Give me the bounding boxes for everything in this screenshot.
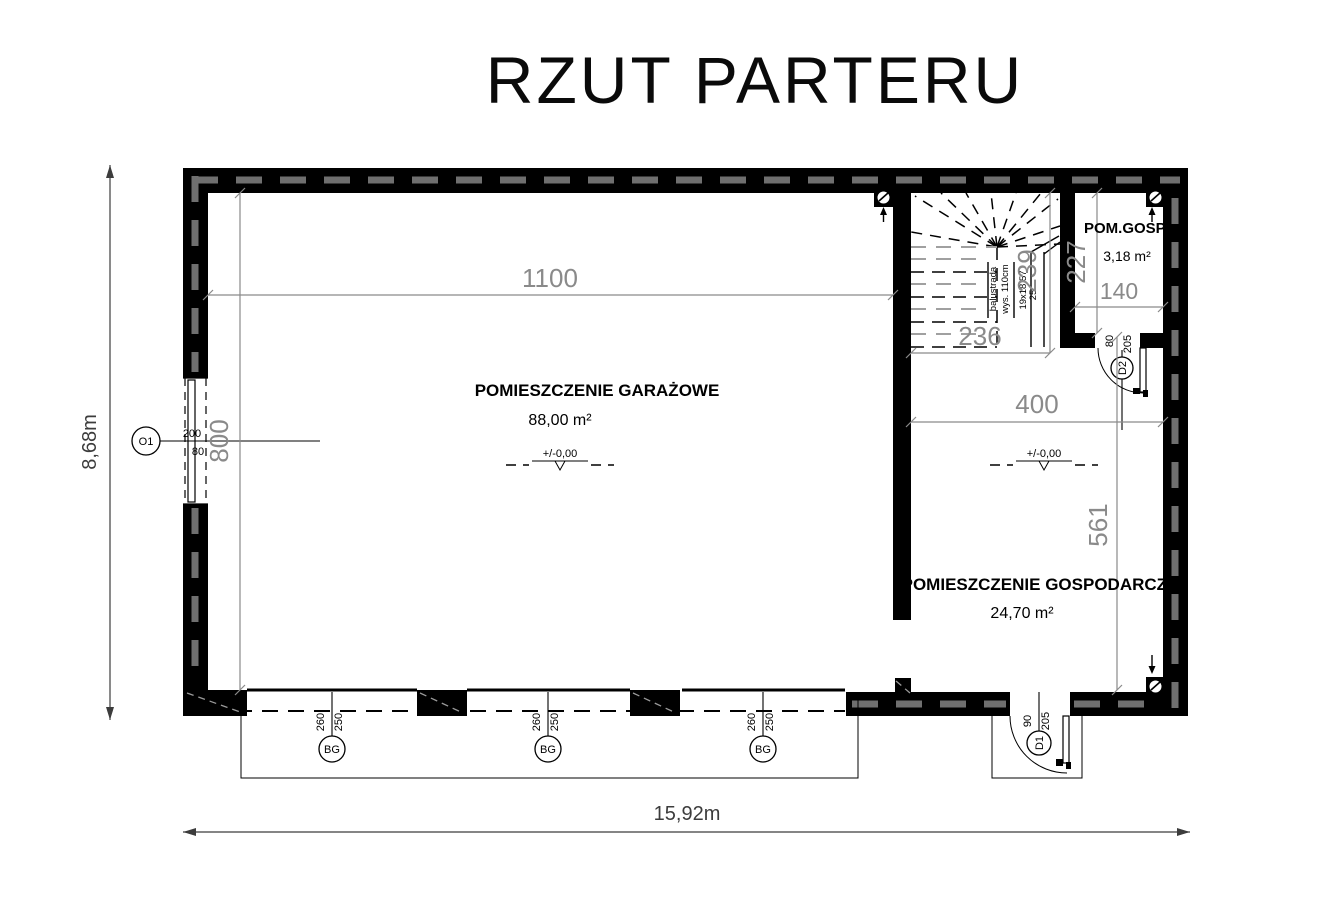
rain-pipe-icon <box>1146 188 1165 222</box>
rain-pipe-icon <box>1146 655 1165 696</box>
dim-garage-width: 1100 <box>522 263 578 293</box>
dim-stair-depth: 239 <box>1012 249 1042 292</box>
garage-door-marker-2: 260 250 BG <box>531 692 561 762</box>
wall-right <box>1163 193 1188 716</box>
door-d2-height: 205 <box>1122 335 1134 353</box>
window-o1-width: 200 <box>183 428 201 440</box>
dim-overall-depth: 8,68m <box>79 414 101 470</box>
door-d2-label: D2 <box>1117 361 1129 375</box>
door-d1: 90 205 D1 <box>1010 692 1071 773</box>
bg3-label: BG <box>755 744 771 756</box>
bg1-label: BG <box>324 744 340 756</box>
door-d1-height: 205 <box>1040 712 1052 730</box>
dim-storage-depth: 227 <box>1061 240 1091 283</box>
bg1-height: 250 <box>333 713 345 731</box>
garage-room-area: 88,00 m² <box>528 412 592 429</box>
page-title: RZUT PARTERU <box>486 43 1024 117</box>
dim-storage-width: 140 <box>1100 278 1138 304</box>
window-o1-height: 80 <box>192 446 204 458</box>
dim-overall-width: 15,92m <box>654 803 721 825</box>
door-d1-width: 90 <box>1022 715 1034 727</box>
garage-room-name: POMIESZCZENIE GARAŻOWE <box>475 381 720 400</box>
bg3-height: 250 <box>764 713 776 731</box>
door-d2-leaf <box>1140 348 1146 392</box>
garage-door-marker-1: 260 250 BG <box>315 692 345 762</box>
dim-utility-width: 400 <box>1015 389 1058 419</box>
stair-balustrade-label: balustrada <box>988 266 999 311</box>
window-o1-label: O1 <box>139 436 154 448</box>
level-marker-utility: +/-0,00 <box>990 448 1098 470</box>
storage-room-area: 3,18 m² <box>1103 248 1151 264</box>
level-marker-garage: +/-0,00 <box>506 448 614 470</box>
stair-balustrade-height: wys. 110cm <box>1000 264 1011 315</box>
garage-door-marker-3: 260 250 BG <box>746 692 776 762</box>
bg2-height: 250 <box>549 713 561 731</box>
bg3-width: 260 <box>746 713 758 731</box>
stair-winder-rays <box>911 193 1060 247</box>
bg2-width: 260 <box>531 713 543 731</box>
rain-pipe-icon <box>874 188 893 222</box>
door-d1-leaf <box>1063 716 1069 763</box>
dim-garage-depth: 800 <box>204 419 234 462</box>
utility-room-area: 24,70 m² <box>990 605 1054 622</box>
utility-room-name: POMIESZCZENIE GOSPODARCZE <box>902 575 1179 594</box>
door-d1-label: D1 <box>1034 736 1046 750</box>
dim-utility-depth: 561 <box>1083 503 1113 546</box>
storage-room-name: POM.GOSP <box>1084 220 1166 237</box>
floor-plan-drawing: RZUT PARTERU <box>0 0 1318 908</box>
bg2-label: BG <box>540 744 556 756</box>
level-garage-text: +/-0,00 <box>543 448 578 460</box>
floor-plan-page: RZUT PARTERU <box>0 0 1318 908</box>
level-utility-text: +/-0,00 <box>1027 448 1062 460</box>
dim-stair-width: 236 <box>958 321 1001 351</box>
door-d2: 80 205 D2 <box>1098 335 1148 430</box>
wall-under-storage-left <box>1060 333 1095 348</box>
door-d2-width: 80 <box>1104 335 1116 347</box>
wall-under-storage-right <box>1140 333 1163 348</box>
bg1-width: 260 <box>315 713 327 731</box>
wall-interior-vertical <box>893 193 911 620</box>
